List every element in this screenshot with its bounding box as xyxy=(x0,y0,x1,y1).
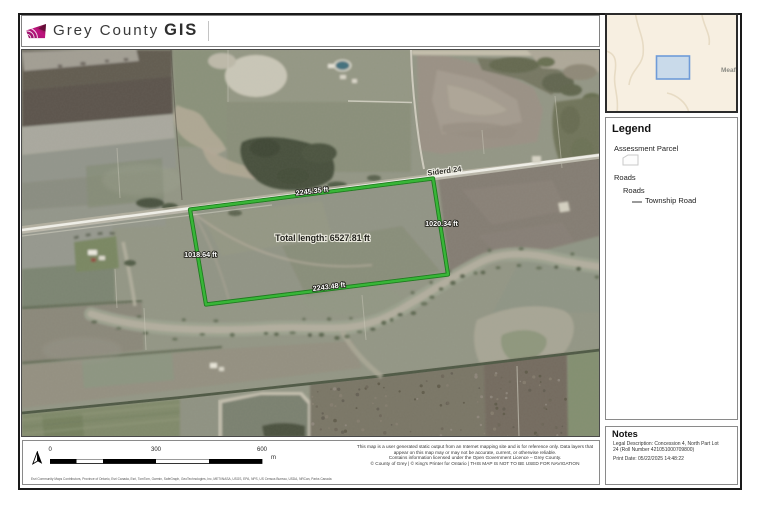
svg-text:Total length: 6527.81 ft: Total length: 6527.81 ft xyxy=(275,233,370,243)
svg-text:1018.64 ft: 1018.64 ft xyxy=(184,250,217,259)
svg-text:Meaf: Meaf xyxy=(721,67,737,74)
svg-text:1020.34 ft: 1020.34 ft xyxy=(425,219,458,228)
